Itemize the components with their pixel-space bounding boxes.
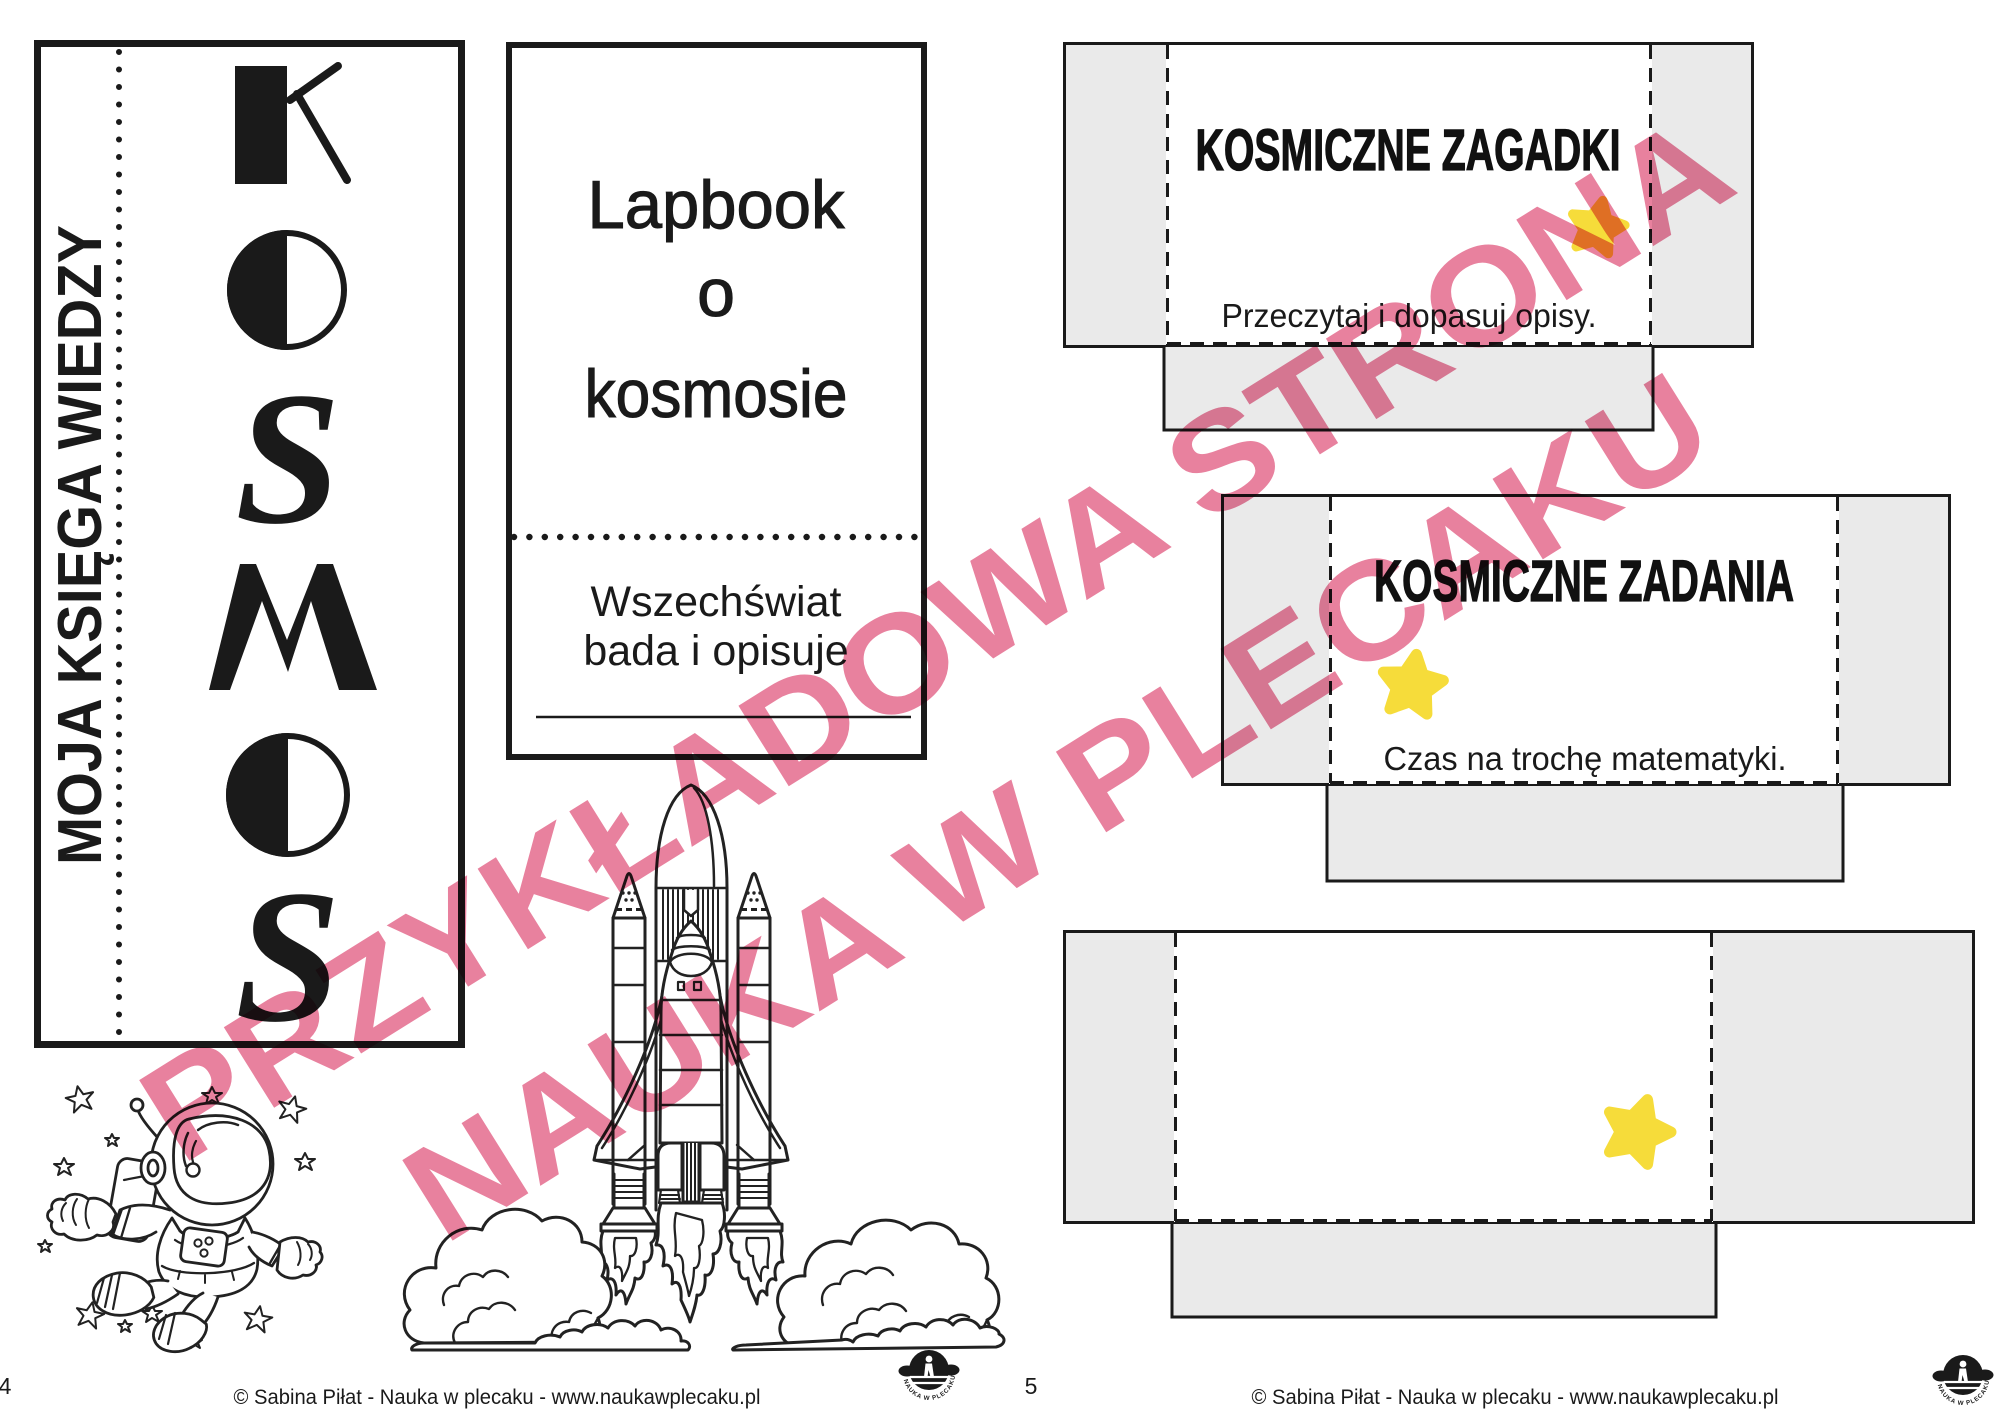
svg-text:o: o xyxy=(697,255,735,331)
svg-text:© Sabina Piłat - Nauka w pleca: © Sabina Piłat - Nauka w plecaku - www.n… xyxy=(234,1386,761,1409)
svg-text:4: 4 xyxy=(0,1373,12,1399)
svg-text:5: 5 xyxy=(1025,1373,1038,1399)
svg-text:kosmosie: kosmosie xyxy=(585,356,848,432)
svg-text:Czas na trochę matematyki.: Czas na trochę matematyki. xyxy=(1384,740,1787,777)
svg-text:Lapbook: Lapbook xyxy=(588,167,846,243)
svg-text:© Sabina Piłat - Nauka w pleca: © Sabina Piłat - Nauka w plecaku - www.n… xyxy=(1252,1386,1779,1409)
svg-text:Wszechświat: Wszechświat xyxy=(591,578,842,626)
svg-text:S: S xyxy=(235,354,341,564)
svg-text:MOJA KSIĘGA WIEDZY: MOJA KSIĘGA WIEDZY xyxy=(46,225,115,865)
